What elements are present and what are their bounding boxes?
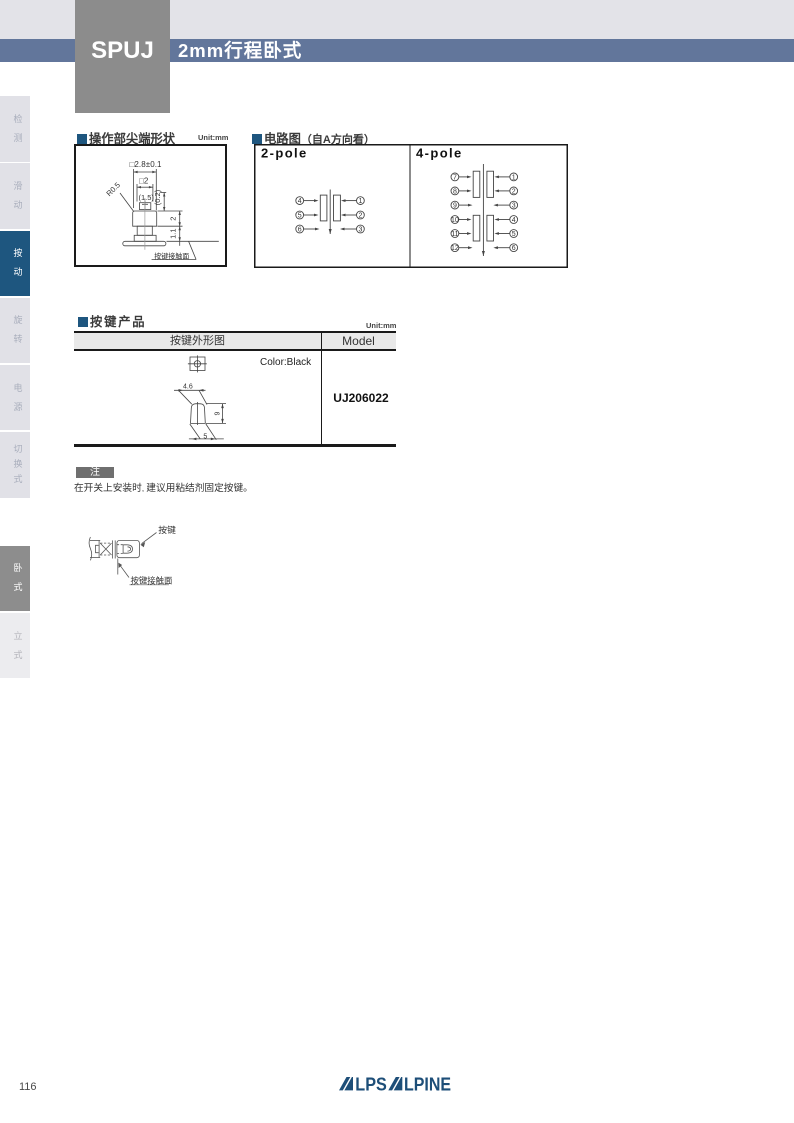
svg-text:4-pole: 4-pole <box>416 145 463 160</box>
svg-text:4.6: 4.6 <box>183 384 193 391</box>
svg-text:12: 12 <box>451 245 459 252</box>
svg-text:2: 2 <box>358 212 362 219</box>
svg-text:1.1: 1.1 <box>169 228 178 238</box>
svg-text:11: 11 <box>451 231 458 238</box>
svg-text:10: 10 <box>451 217 459 224</box>
svg-text:按键接触面: 按键接触面 <box>131 575 173 585</box>
svg-text:按键接触面: 按键接触面 <box>154 251 189 260</box>
svg-text:9: 9 <box>215 411 222 415</box>
svg-text:按键: 按键 <box>158 524 176 535</box>
svg-text:1: 1 <box>512 174 516 181</box>
svg-text:□2: □2 <box>139 176 149 185</box>
svg-text:LPS: LPS <box>355 1077 387 1091</box>
svg-text:(0.2): (0.2) <box>153 189 162 205</box>
svg-text:3: 3 <box>512 202 516 209</box>
svg-text:R0.5: R0.5 <box>104 180 122 198</box>
svg-text:7: 7 <box>453 174 457 181</box>
svg-text:4: 4 <box>298 198 302 205</box>
svg-text:8: 8 <box>453 188 457 195</box>
svg-text:2: 2 <box>169 216 178 220</box>
svg-text:2: 2 <box>512 188 516 195</box>
svg-text:4: 4 <box>512 217 516 224</box>
svg-text:LPINE: LPINE <box>404 1077 451 1091</box>
svg-text:5: 5 <box>512 231 516 238</box>
svg-text:5: 5 <box>298 212 302 219</box>
svg-text:5: 5 <box>203 433 207 440</box>
svg-text:2-pole: 2-pole <box>261 145 308 160</box>
svg-text:1: 1 <box>358 198 362 205</box>
svg-text:3: 3 <box>358 226 362 233</box>
svg-text:6: 6 <box>298 226 302 233</box>
svg-text:9: 9 <box>453 202 457 209</box>
svg-text:6: 6 <box>512 245 516 252</box>
svg-text:□2.8±0.1: □2.8±0.1 <box>130 160 163 169</box>
